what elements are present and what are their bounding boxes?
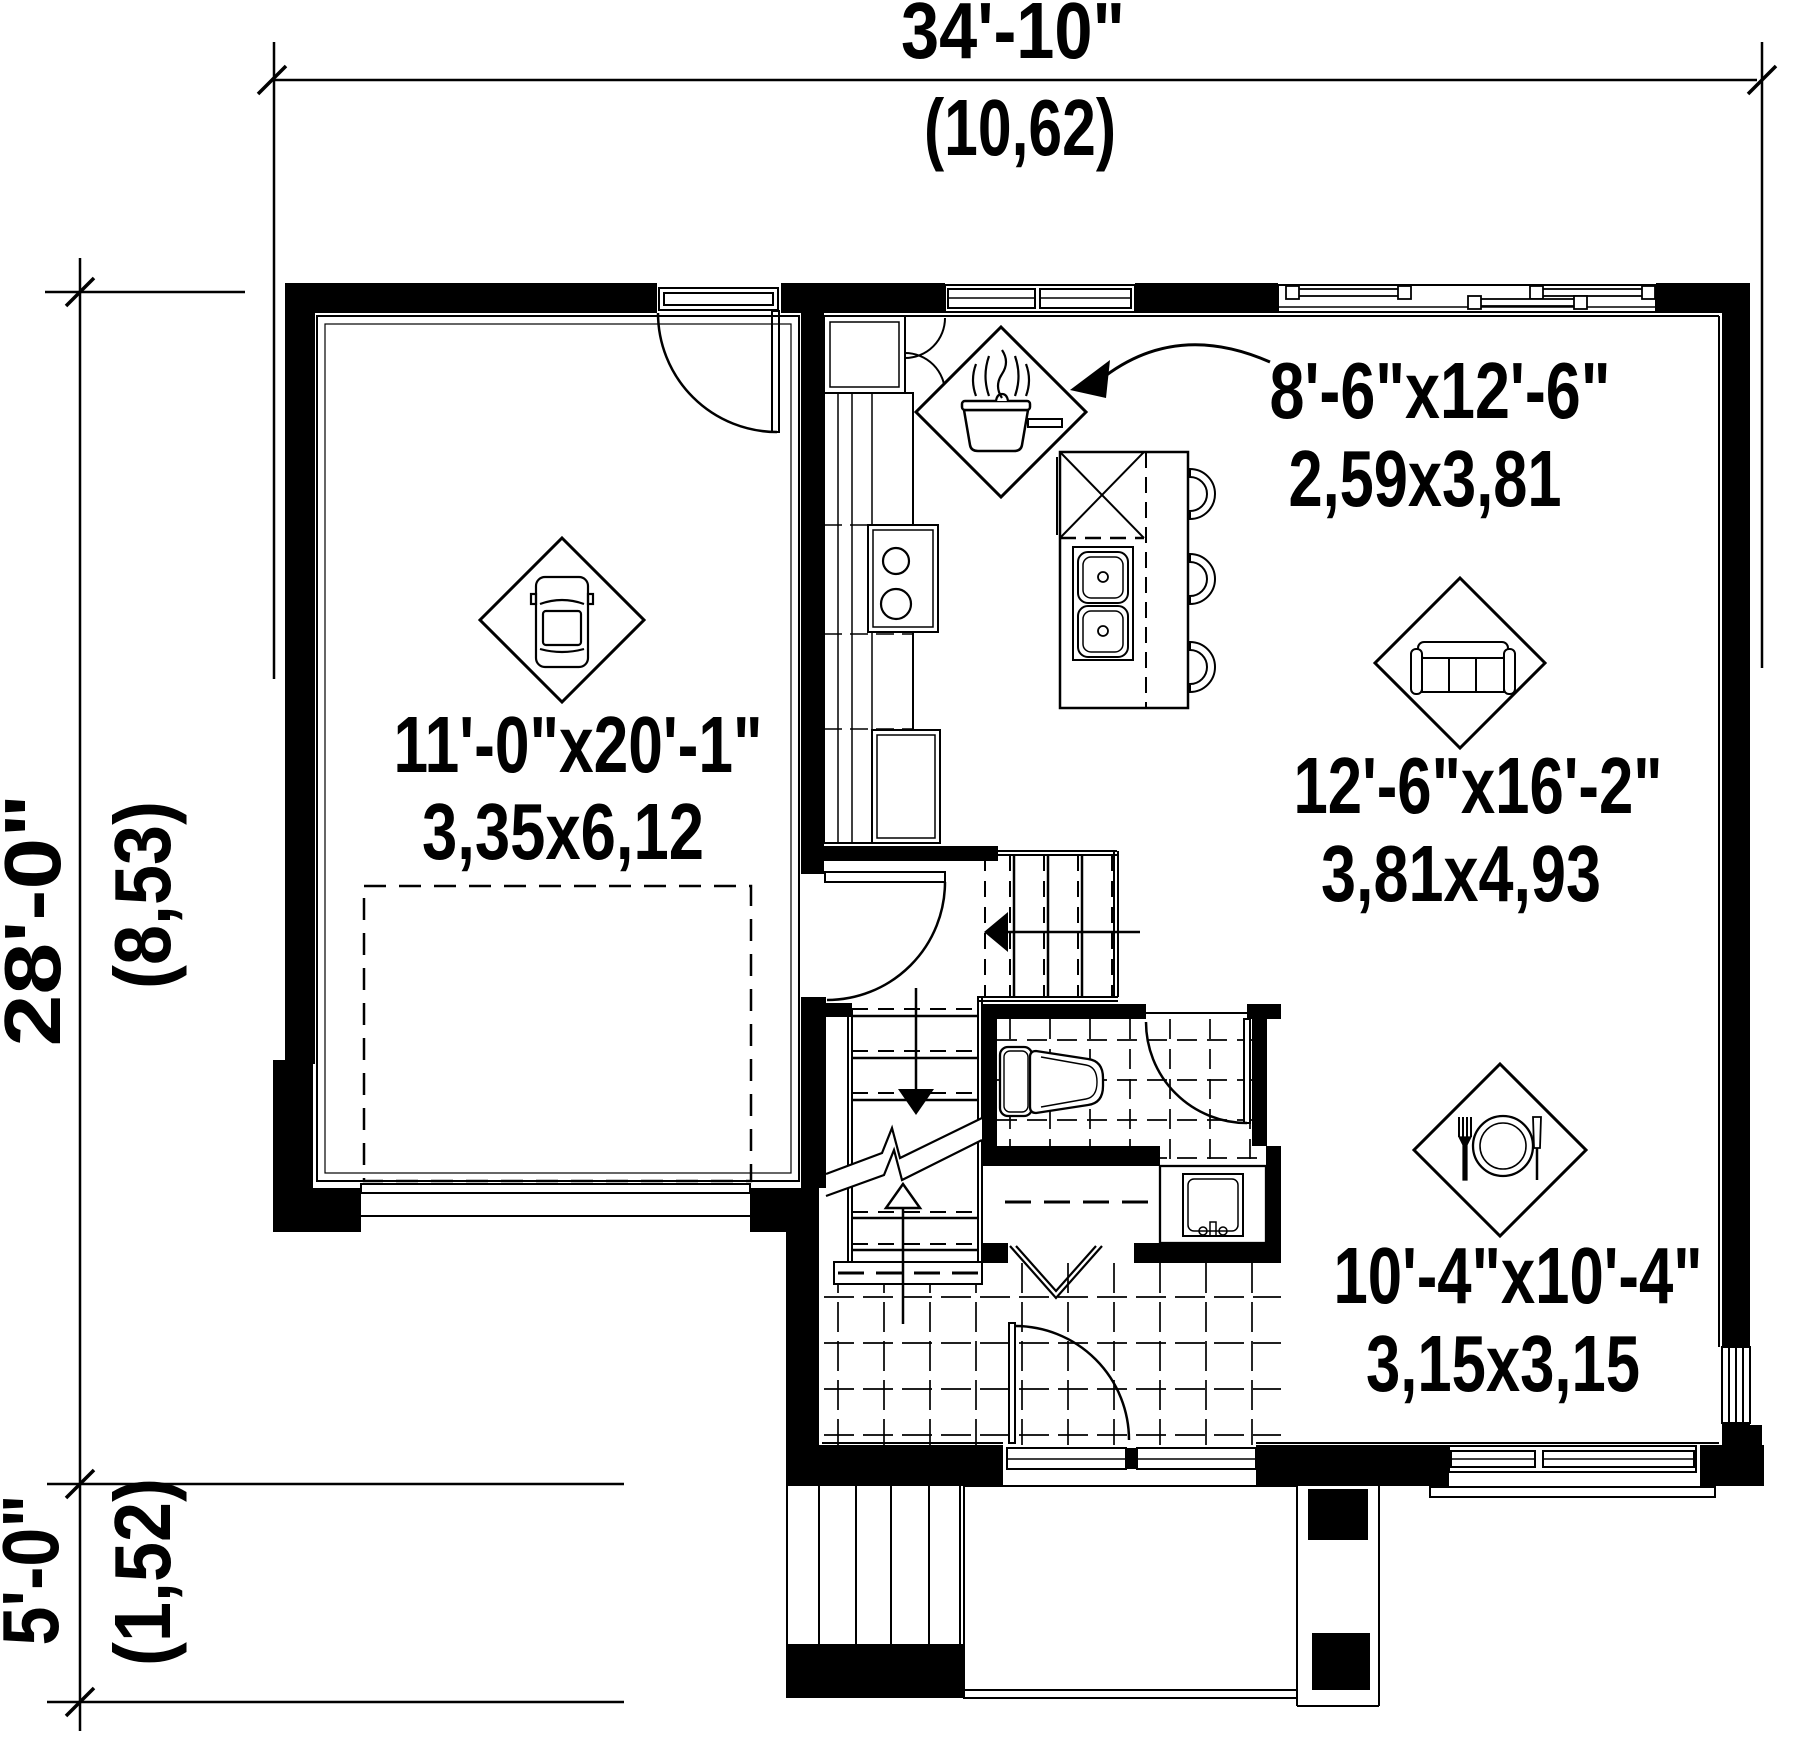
svg-text:(10,62): (10,62) bbox=[924, 83, 1116, 172]
svg-text:3,81x4,93: 3,81x4,93 bbox=[1321, 829, 1601, 918]
svg-text:(8,53): (8,53) bbox=[98, 801, 187, 989]
svg-text:10'-4"x10'-4": 10'-4"x10'-4" bbox=[1334, 1231, 1703, 1320]
svg-text:(1,52): (1,52) bbox=[98, 1478, 187, 1666]
svg-text:34'-10": 34'-10" bbox=[901, 0, 1125, 75]
svg-text:11'-0"x20'-1": 11'-0"x20'-1" bbox=[394, 700, 763, 789]
svg-text:3,15x3,15: 3,15x3,15 bbox=[1366, 1319, 1640, 1408]
svg-text:12'-6"x16'-2": 12'-6"x16'-2" bbox=[1294, 741, 1663, 830]
svg-text:2,59x3,81: 2,59x3,81 bbox=[1289, 434, 1562, 523]
svg-text:28'-0": 28'-0" bbox=[0, 794, 77, 1047]
svg-text:8'-6"x12'-6": 8'-6"x12'-6" bbox=[1270, 346, 1611, 435]
svg-text:5'-0": 5'-0" bbox=[0, 1495, 75, 1646]
svg-text:3,35x6,12: 3,35x6,12 bbox=[422, 787, 704, 876]
